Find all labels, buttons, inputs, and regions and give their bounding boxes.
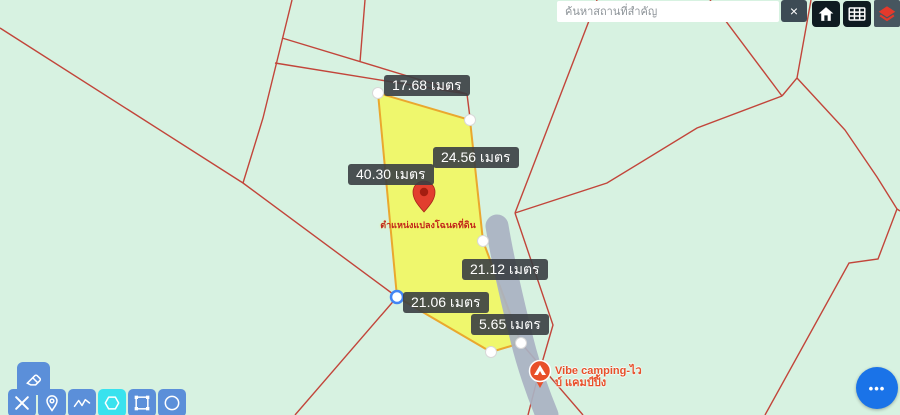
clear-search-button[interactable]: × — [781, 0, 807, 22]
layers-button[interactable] — [874, 0, 900, 27]
vertex-handle[interactable] — [478, 236, 489, 247]
eraser-icon — [24, 369, 44, 389]
poi-label-line1: Vibe camping-ไว — [555, 365, 642, 377]
measure-label: 5.65 เมตร — [471, 314, 549, 335]
measure-label: 17.68 เมตร — [384, 75, 470, 96]
draw-circle-tool-button[interactable] — [158, 389, 186, 415]
rectangle-icon — [132, 393, 152, 413]
measure-label: 21.12 เมตร — [462, 259, 548, 280]
layers-icon — [876, 3, 898, 25]
measure-label: 40.30 เมตร — [348, 164, 434, 185]
circle-icon — [162, 393, 182, 413]
map-app: 17.68 เมตร 24.56 เมตร 40.30 เมตร 21.12 เ… — [0, 0, 900, 415]
vertex-handle[interactable] — [516, 338, 527, 349]
poi-label-line2: บ์ แคมป์ปิ้ง — [555, 377, 642, 389]
home-icon — [815, 3, 837, 25]
polygon-icon — [102, 393, 122, 413]
vertex-handle[interactable] — [486, 347, 497, 358]
vertex-handle-active[interactable] — [391, 291, 403, 303]
measure-line-tool-button[interactable] — [68, 389, 96, 415]
vertex-handle[interactable] — [465, 115, 476, 126]
marker-icon — [42, 393, 62, 413]
measure-label: 21.06 เมตร — [403, 292, 489, 313]
draw-rectangle-tool-button[interactable] — [128, 389, 156, 415]
poi-label[interactable]: Vibe camping-ไว บ์ แคมป์ปิ้ง — [555, 365, 642, 389]
vertex-handle[interactable] — [373, 88, 384, 99]
grid-icon — [846, 3, 868, 25]
measure-label: 24.56 เมตร — [433, 147, 519, 168]
crossed-pencils-tool-button[interactable] — [8, 389, 36, 415]
map-canvas[interactable] — [0, 0, 900, 415]
pin-caption: ตำแหน่งแปลงโฉนดที่ดิน — [380, 218, 476, 232]
draw-polygon-tool-button[interactable] — [98, 389, 126, 415]
grid-button[interactable] — [843, 1, 871, 27]
place-marker-tool-button[interactable] — [38, 389, 66, 415]
crossed-pencils-icon — [12, 393, 32, 413]
home-button[interactable] — [812, 1, 840, 27]
search-input[interactable] — [557, 1, 779, 22]
polyline-icon — [72, 393, 92, 413]
more-options-fab[interactable]: ••• — [856, 367, 898, 409]
